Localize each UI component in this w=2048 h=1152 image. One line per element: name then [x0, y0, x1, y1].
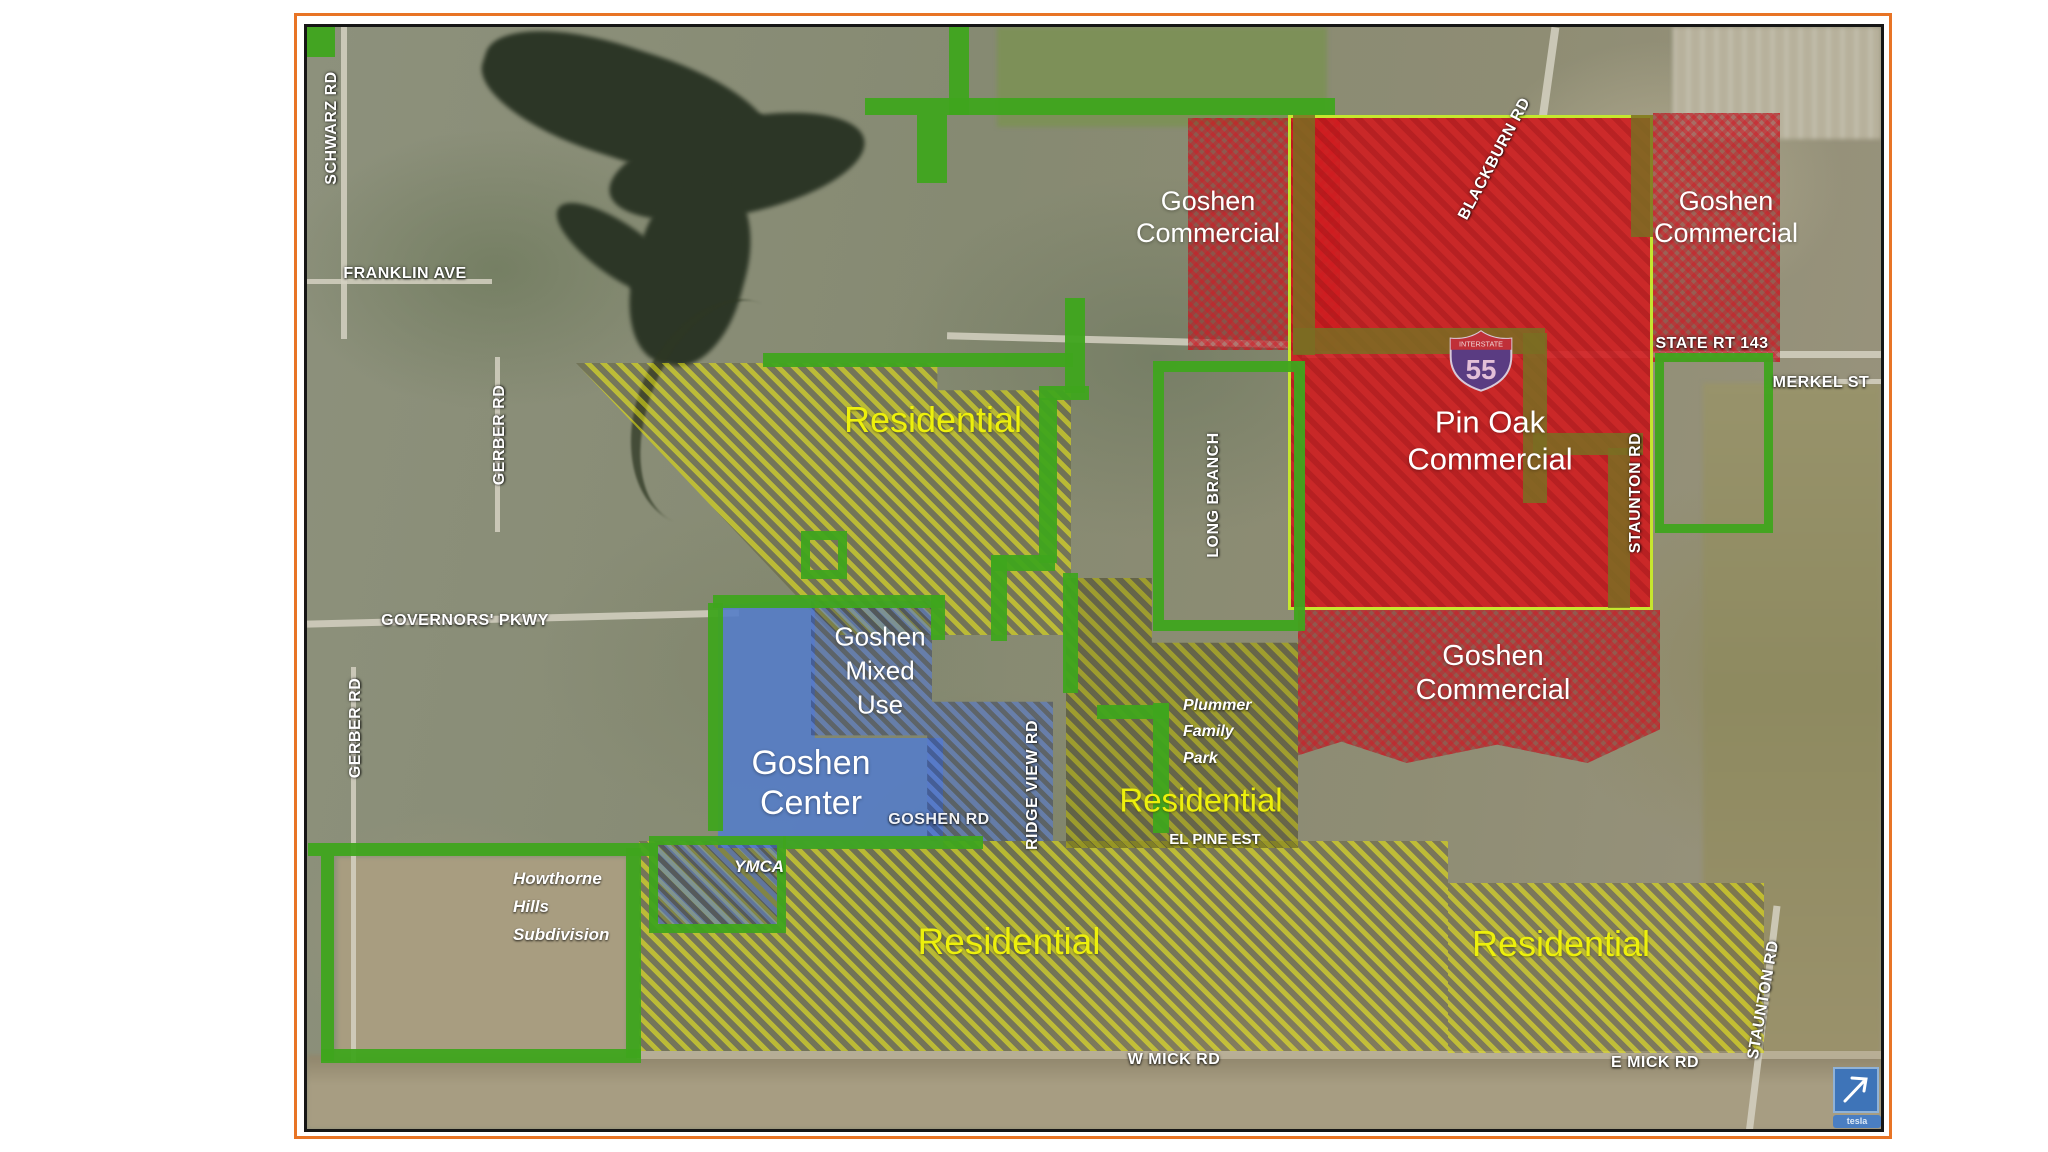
zone-label-line: Center [751, 783, 870, 823]
road-label-w-mick-rd: W MICK RD [1128, 1051, 1220, 1069]
zone-label-line: Mixed [834, 654, 925, 688]
city-boundary-segment [1097, 705, 1169, 719]
zone-label-line: Goshen [1136, 186, 1280, 218]
zone-label-goshen-commercial-mid: Goshen Commercial [1416, 639, 1571, 707]
attribution-logo-text: tesla [1833, 1115, 1881, 1128]
city-boundary-segment [708, 603, 723, 831]
city-boundary-segment [626, 848, 641, 1058]
landmark-line: Hills [513, 893, 609, 921]
zone-label-line: Use [834, 688, 925, 722]
city-boundary-segment [321, 1049, 641, 1063]
city-boundary-segment [1065, 298, 1085, 393]
road-label-gerber-rd-n: GERBER RD [491, 385, 509, 486]
landmark-label-howthorne: Howthorne Hills Subdivision [513, 865, 609, 949]
city-boundary-segment [865, 98, 1335, 115]
road-label-long-branch: LONG BRANCH [1205, 432, 1223, 558]
zone-label-line: Goshen [834, 620, 925, 654]
zone-label-residential-upper: Residential [844, 399, 1022, 441]
zone-label-goshen-commercial-ne: Goshen Commercial [1654, 186, 1798, 250]
road-label-staunton-rd-n: STAUNTON RD [1627, 433, 1645, 553]
interstate-55-shield-icon: INTERSTATE 55 [1448, 330, 1514, 392]
shield-band-text: INTERSTATE [1459, 339, 1503, 348]
city-boundary-segment [783, 836, 983, 849]
landmark-line: Howthorne [513, 865, 609, 893]
city-boundary-segment [1039, 398, 1057, 563]
zone-label-goshen-commercial-nw: Goshen Commercial [1136, 186, 1280, 250]
parkway-parcel-outline [801, 531, 847, 579]
pin-oak-road [1631, 115, 1653, 237]
road-label-state-rt-143: STATE RT 143 [1656, 335, 1769, 353]
landmark-line: Family [1183, 719, 1251, 745]
road-label-e-mick-rd: E MICK RD [1611, 1054, 1699, 1072]
city-boundary-segment [308, 843, 658, 856]
road-label-goshen-rd: GOSHEN RD [888, 811, 989, 829]
road-label-franklin-ave: FRANKLIN AVE [343, 265, 466, 283]
city-boundary-segment [307, 27, 335, 57]
zone-label-line: Pin Oak [1407, 404, 1572, 441]
city-boundary-segment [1063, 573, 1078, 693]
city-boundary-segment [931, 595, 945, 640]
zone-label-line: Commercial [1407, 441, 1572, 478]
landmark-line: Subdivision [513, 921, 609, 949]
road-label-governors-pkwy: GOVERNORS' PKWY [381, 612, 549, 630]
zone-label-line: Commercial [1136, 218, 1280, 250]
zone-label-line: Commercial [1654, 218, 1798, 250]
zone-label-residential-center: Residential [1119, 782, 1282, 821]
zone-residential-bottom-right [1448, 883, 1764, 1053]
city-boundary-segment [713, 595, 943, 608]
city-boundary-segment [321, 856, 334, 1061]
school-campus-outline [1655, 353, 1773, 533]
attribution-logo-icon [1833, 1067, 1879, 1113]
road-label-schwarz-rd: SCHWARZ RD [323, 71, 341, 184]
zone-label-residential-bottom: Residential [917, 920, 1100, 964]
zone-label-line: Goshen [751, 743, 870, 783]
zone-label-line: Commercial [1416, 673, 1571, 707]
city-boundary-segment [991, 555, 1007, 641]
road-label-gerber-rd-s: GERBER RD [347, 678, 365, 779]
landmark-line: Plummer [1183, 693, 1251, 719]
ymca-parcel-outline [649, 836, 786, 933]
zone-label-line: Goshen [1654, 186, 1798, 218]
road-label-merkel-st: MERKEL ST [1773, 374, 1870, 392]
zone-label-residential-bottom-right: Residential [1472, 923, 1650, 965]
zone-label-goshen-mixed-use: Goshen Mixed Use [834, 620, 925, 721]
landmark-label-ymca: YMCA [734, 853, 784, 881]
road-label-ridge-view-rd: RIDGE VIEW RD [1024, 720, 1042, 850]
city-boundary-segment [763, 353, 1073, 367]
city-boundary-segment [917, 115, 947, 183]
zone-label-pin-oak-commercial: Pin Oak Commercial [1407, 404, 1572, 477]
road-line-schwarz [341, 27, 347, 339]
shield-number-text: 55 [1466, 354, 1497, 385]
landmark-label-el-pine-est: EL PINE EST [1169, 828, 1260, 853]
pin-oak-road [1293, 115, 1315, 355]
long-branch-parcel-outline [1153, 361, 1305, 631]
zone-label-line: Goshen [1416, 639, 1571, 673]
map-attribution-logo: tesla [1833, 1067, 1881, 1128]
zone-label-goshen-center: Goshen Center [751, 743, 870, 823]
zoning-map: SCHWARZ RD FRANKLIN AVE GERBER RD GERBER… [304, 24, 1884, 1132]
landmark-line: Park [1183, 746, 1251, 772]
landmark-label-plummer: Plummer Family Park [1183, 693, 1251, 772]
